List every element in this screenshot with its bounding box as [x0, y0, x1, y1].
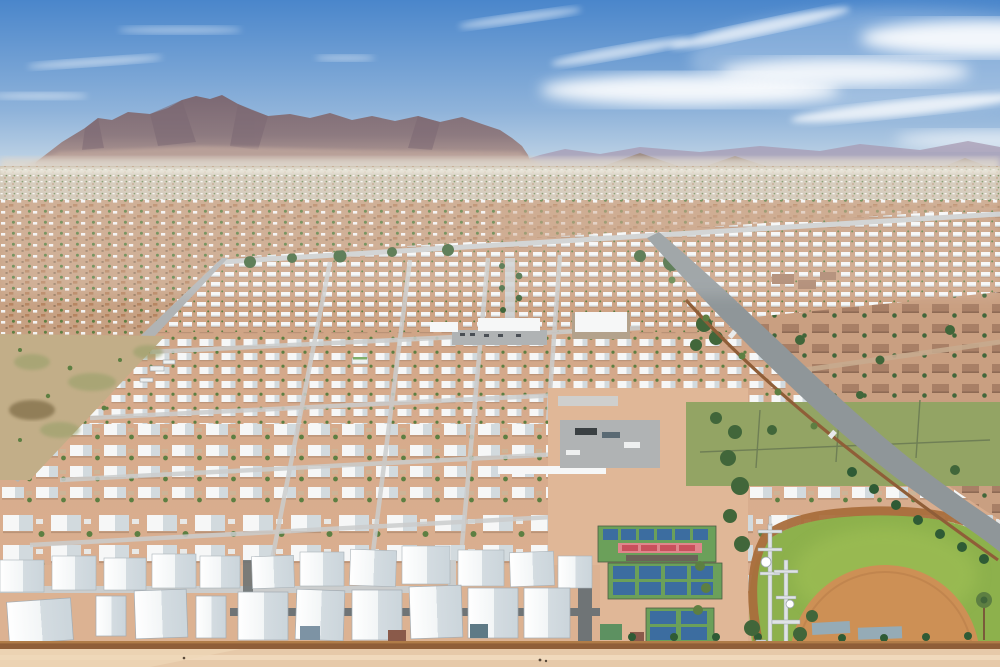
dirt-patch — [9, 400, 55, 420]
wall-top-highlight — [0, 641, 1000, 643]
dumpster-truck — [575, 428, 597, 435]
rv-awning — [353, 357, 367, 360]
bleachers — [626, 555, 698, 561]
foreground-homes — [0, 546, 600, 645]
storage-building — [558, 396, 618, 406]
aerial-photo-stage — [0, 0, 1000, 667]
microwave-dish — [761, 557, 771, 567]
tower-mast-1 — [768, 524, 772, 646]
clubhouse-roof — [575, 312, 627, 332]
aerial-photo — [0, 0, 1000, 667]
court-block-upper — [598, 526, 716, 562]
parking-lot — [560, 420, 660, 468]
court-block-lower — [646, 608, 714, 642]
microwave-dish-2 — [786, 600, 794, 608]
clubhouse-parking — [452, 330, 547, 345]
aerial-haze-overlay — [0, 166, 1000, 296]
court-block-main — [608, 563, 722, 599]
perimeter-and-dirt — [0, 641, 1000, 667]
